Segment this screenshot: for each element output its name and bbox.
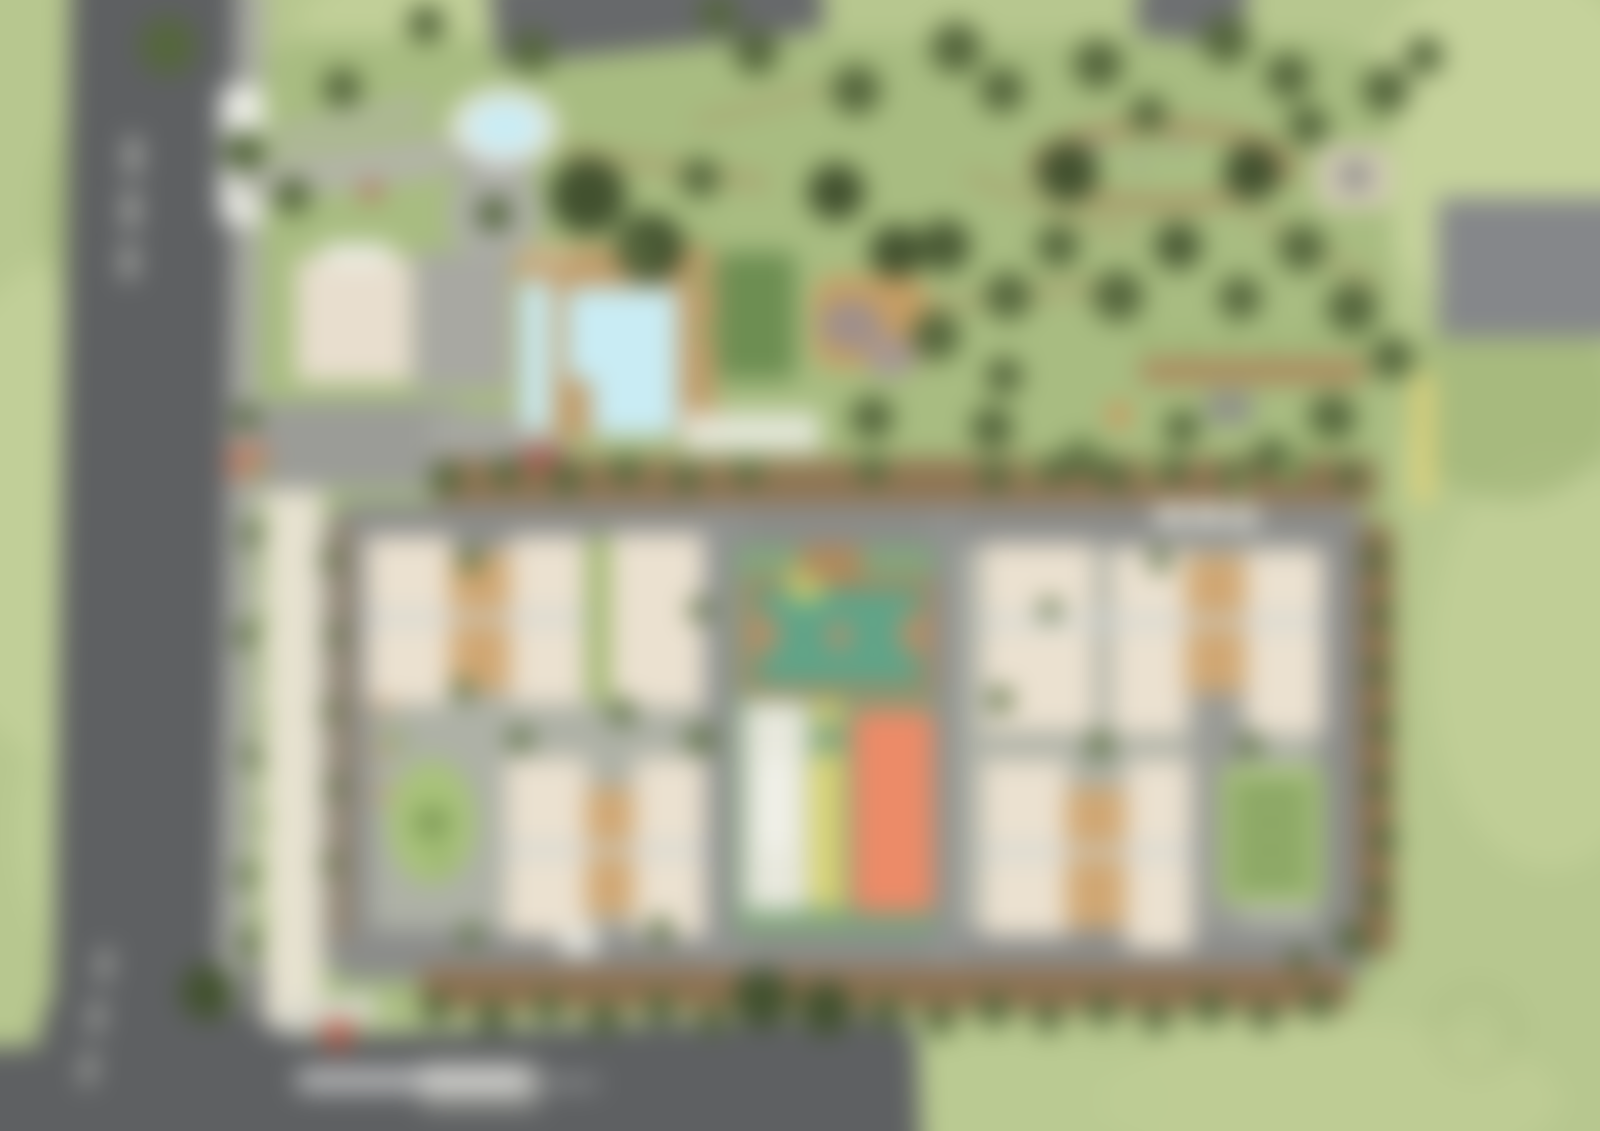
balcony-band [982, 846, 1192, 858]
tree-icon [507, 727, 533, 753]
tree-icon [856, 454, 888, 486]
shrub-icon [693, 449, 707, 463]
tree-icon [1201, 15, 1251, 65]
tree-icon [457, 547, 483, 573]
tree-icon [1092, 270, 1144, 322]
tree-icon [930, 22, 982, 74]
tree-icon [1223, 143, 1281, 201]
court-center [826, 622, 852, 650]
tree-icon [273, 177, 311, 215]
entrance-arrow [318, 1022, 358, 1056]
shrub-icon [1310, 430, 1330, 450]
pool-lounger [528, 252, 542, 262]
tree-icon [1086, 994, 1118, 1026]
right-access-road [1438, 198, 1600, 338]
shrub-icon [691, 271, 709, 289]
shrub-icon [252, 512, 268, 528]
clubhouse-annex [414, 252, 510, 390]
shrub-icon [692, 232, 708, 248]
tree-icon [1129, 95, 1167, 133]
amphitheater-shade [866, 336, 916, 378]
orange-court [852, 710, 934, 912]
tree-icon [420, 992, 452, 1024]
shrub-icon [745, 449, 759, 463]
shrub-icon [249, 461, 267, 479]
parking-strip [263, 428, 323, 1028]
yellow-path [1412, 372, 1434, 504]
shrub-icon [1182, 336, 1198, 352]
tree-icon [979, 67, 1025, 113]
hedge-row [1232, 816, 1310, 829]
tree-icon [180, 964, 236, 1020]
clubhouse-canopy [322, 244, 392, 264]
road-name-smudge [420, 1076, 600, 1090]
tree-icon [1370, 336, 1414, 380]
tree-icon [1086, 731, 1114, 759]
tree-icon [429, 461, 463, 495]
shrub-icon [1262, 336, 1278, 352]
tree-icon [917, 219, 971, 273]
clubhouse [296, 258, 412, 382]
tree-icon [644, 992, 676, 1024]
block-left-b1 [610, 533, 704, 707]
tree-icon [688, 598, 712, 622]
tree-icon [1367, 603, 1393, 629]
block-right-a3 [1246, 550, 1324, 734]
tree-icon [549, 157, 627, 235]
tree-icon [610, 454, 642, 486]
tree-icon [232, 404, 260, 432]
lane-dash [128, 138, 139, 174]
tree-icon [685, 725, 715, 755]
faint-tree-symbol [1434, 988, 1518, 1072]
tree-icon [1265, 53, 1311, 99]
main-pool-leg [592, 368, 678, 436]
tree-icon [1164, 410, 1200, 446]
fountain-core [476, 196, 512, 232]
tree-icon [1370, 826, 1398, 854]
tree-icon [324, 626, 344, 646]
shrub-icon [1231, 476, 1249, 494]
block-right-c-core [1066, 788, 1128, 928]
garden-pavilion [1206, 392, 1252, 424]
tree-icon [869, 225, 923, 279]
tree-icon [831, 65, 881, 115]
shrub-icon [1222, 332, 1238, 348]
main-pool [566, 288, 678, 380]
kids-pool [468, 101, 542, 153]
tree-icon [1362, 882, 1390, 910]
balcony-band [982, 616, 1324, 628]
shrub-icon [1278, 458, 1302, 482]
yellow-lane-dot [812, 700, 844, 726]
parked-car [1156, 504, 1186, 526]
tree-icon [1039, 599, 1061, 621]
tree-icon [587, 1001, 621, 1035]
tree-icon [1036, 224, 1080, 268]
shrub-icon [698, 322, 714, 338]
tree-icon [1073, 39, 1123, 89]
tree-icon [320, 854, 340, 874]
shrub-icon [1082, 442, 1098, 458]
shrub-icon [385, 730, 405, 750]
hedge-row [1232, 872, 1310, 885]
tree-icon [222, 130, 266, 174]
tree-icon [1237, 732, 1263, 758]
shrub-icon [252, 812, 268, 828]
tree-icon [985, 357, 1023, 395]
tree-icon [1033, 1003, 1063, 1033]
shrub-icon [252, 612, 268, 628]
tree-icon [970, 406, 1014, 450]
tree-icon [1369, 715, 1395, 741]
planting-strip-left-inner [332, 520, 350, 940]
shrub-icon [250, 562, 266, 578]
tree-icon [1363, 659, 1389, 685]
shrub-icon [431, 851, 449, 869]
tree-icon [407, 5, 445, 43]
tree-icon [697, 1005, 727, 1035]
hedge-row [1232, 788, 1310, 801]
loop-seat [1090, 140, 1106, 152]
tree-icon [671, 463, 701, 493]
terrace [372, 700, 392, 712]
lane-dash [124, 246, 135, 278]
tree-icon [733, 29, 779, 75]
tree-icon [490, 456, 522, 488]
tree-icon [324, 778, 344, 798]
pool-lounger [552, 252, 566, 262]
shrub-icon [250, 862, 266, 878]
tree-icon [1249, 1001, 1279, 1031]
tree-icon [458, 923, 482, 947]
tree-icon [869, 995, 903, 1029]
parked-car [1192, 504, 1222, 526]
tree-icon [1326, 282, 1378, 334]
flowering-tree [1108, 404, 1130, 426]
tree-icon [1287, 105, 1329, 147]
tree-icon [984, 272, 1032, 320]
shrub-icon [252, 912, 268, 928]
tree-icon [977, 993, 1011, 1027]
court-key [750, 612, 780, 656]
tree-icon [732, 968, 792, 1028]
gazebo-roof [1338, 160, 1372, 192]
playground-center [414, 806, 450, 840]
tree-icon [549, 461, 583, 495]
lap-pool [520, 280, 552, 432]
tree-icon [987, 687, 1013, 713]
tree-icon [1039, 455, 1069, 485]
site-plan-canvas [0, 0, 1600, 1131]
tree-icon [450, 678, 474, 702]
tree-icon [322, 68, 362, 108]
tree-icon [1193, 991, 1227, 1025]
tree-icon [850, 396, 894, 440]
tree-icon [1302, 988, 1334, 1020]
tree-icon [1362, 66, 1410, 114]
tree-icon [1333, 461, 1363, 491]
shrub-icon [250, 662, 266, 678]
tree-icon [1098, 460, 1130, 492]
shrub-icon [1343, 337, 1357, 351]
tree-icon [1154, 222, 1202, 270]
shrub-icon [719, 449, 733, 463]
balcony-band [366, 612, 586, 624]
lawn-court [716, 252, 796, 380]
tree-icon [924, 1004, 956, 1036]
tree-icon [1148, 548, 1172, 572]
tree-icon [319, 549, 341, 571]
tree-icon [510, 30, 554, 74]
tree-icon [533, 993, 563, 1023]
tree-icon [139, 17, 197, 75]
tree-icon [1288, 948, 1312, 972]
block-right-a2 [1112, 548, 1188, 734]
shrub-icon [1142, 332, 1158, 348]
tree-icon [1159, 455, 1189, 485]
tree-icon [234, 624, 258, 648]
main-road [52, 0, 239, 1051]
lane-dash [126, 192, 137, 228]
tree-icon [1360, 546, 1388, 574]
site-plan-viewport [0, 0, 1600, 1131]
tree-icon [608, 698, 636, 726]
tree-icon [1365, 771, 1391, 797]
tree-icon [911, 311, 961, 361]
tree-icon [237, 931, 263, 957]
entry-kiosk [362, 184, 380, 198]
tree-icon [978, 460, 1010, 492]
shrub-icon [1302, 332, 1318, 348]
shrub-icon [1141, 461, 1159, 479]
tree-icon [1278, 224, 1326, 272]
tree-icon [1218, 276, 1262, 320]
tree-icon [799, 981, 853, 1035]
tree-icon [807, 163, 865, 221]
tree-icon [619, 233, 657, 271]
parked-car [560, 930, 598, 956]
parked-car [1228, 506, 1258, 528]
tree-icon [1405, 37, 1443, 75]
shrub-icon [250, 762, 266, 778]
shrub-icon [797, 449, 811, 463]
tree-icon [1037, 141, 1099, 203]
tree-icon [1335, 923, 1369, 957]
terrace [372, 788, 392, 800]
balcony-band [506, 844, 706, 856]
tree-icon [1141, 1003, 1171, 1033]
shrub-icon [252, 712, 268, 728]
tree-icon [475, 999, 509, 1033]
shrub-icon [771, 449, 785, 463]
courtyard-path [588, 535, 612, 705]
tree-icon [320, 702, 340, 722]
orchard-path [1138, 358, 1368, 384]
tree-icon [647, 917, 673, 943]
tree-icon [680, 158, 720, 198]
court-key [898, 612, 928, 656]
loop-seat [1170, 142, 1186, 154]
white-court-inner [758, 760, 792, 850]
hedge-row [1232, 844, 1310, 857]
loop-seat [1130, 155, 1148, 167]
shrub-icon [1022, 462, 1038, 478]
court-tan-top [800, 545, 862, 579]
